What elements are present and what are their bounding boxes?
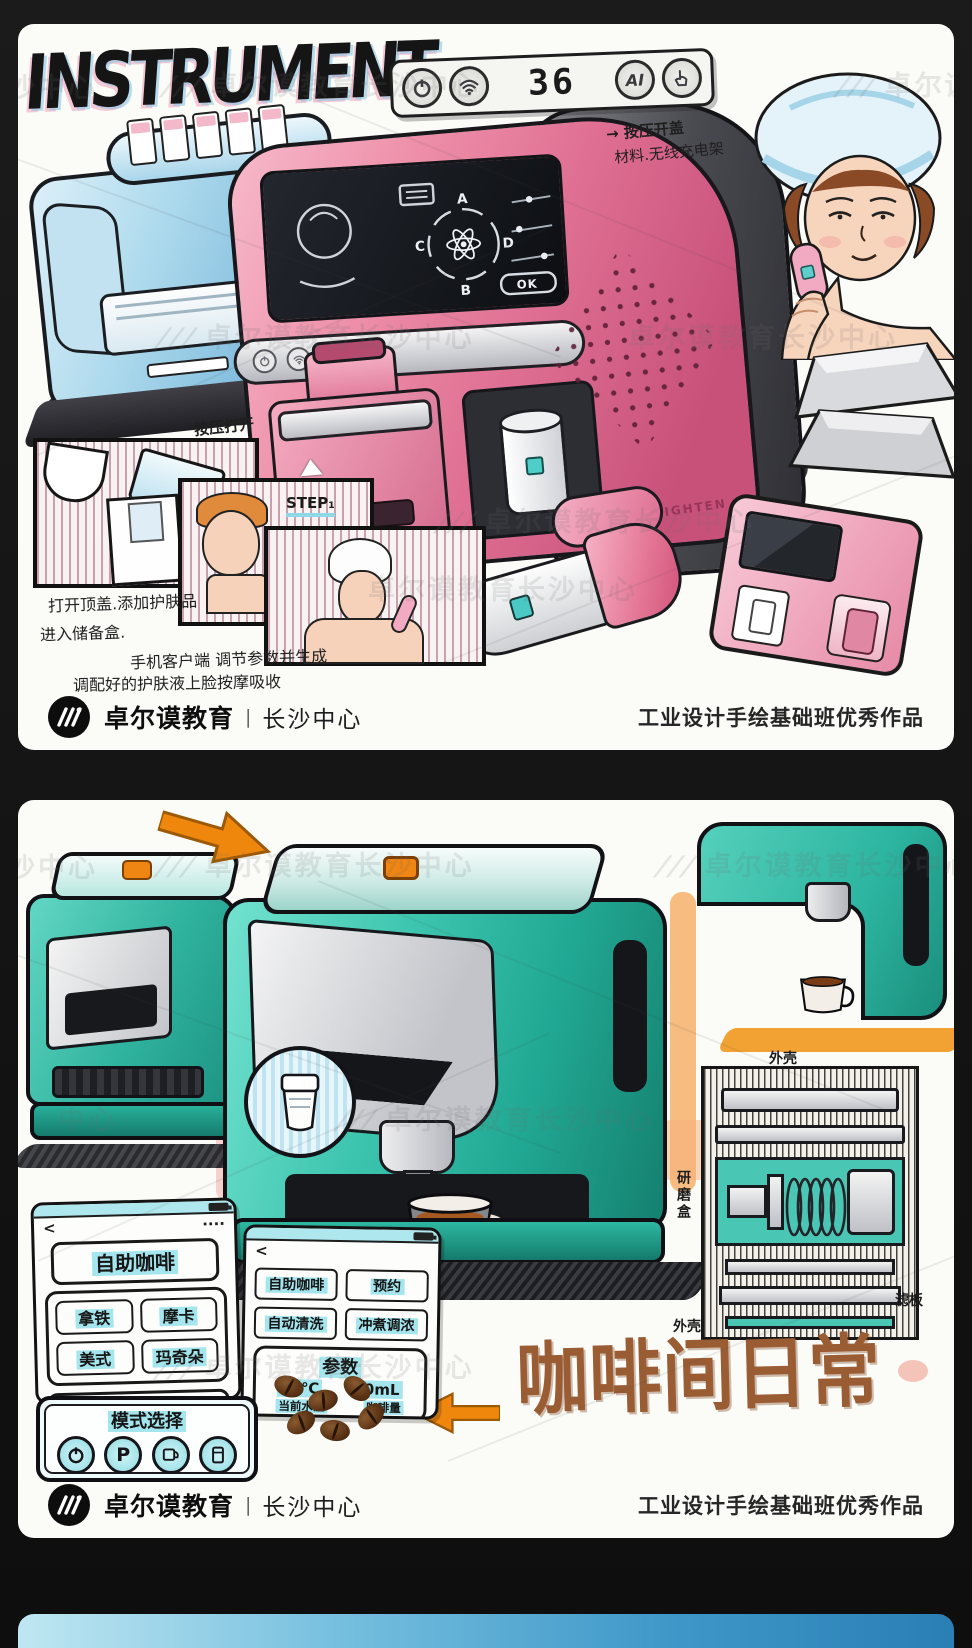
silver-band [232, 319, 586, 386]
phone-nav: < ···· [34, 1213, 234, 1238]
grinder-exploded-diagram: 外壳 研磨盒 外壳 滤板 [673, 1052, 919, 1340]
hatch-backdrop [701, 1066, 919, 1340]
device-screen: A D B C OK [259, 153, 570, 323]
settings-row-2: 自动清洗 冲煮调浓 [254, 1306, 429, 1341]
annotation-line4: 调配好的护肤液上脸按摩吸收 [73, 668, 281, 696]
battery-icon [208, 1202, 228, 1211]
self-service-coffee-title: 自助咖啡 [50, 1238, 219, 1285]
cartridge [126, 118, 158, 167]
left-view-front-panel [46, 925, 172, 1050]
option-latte: 拿铁 [55, 1299, 133, 1335]
coffee-machine-left-view [26, 852, 250, 1164]
power-icon [67, 1446, 85, 1464]
battery-icon [413, 1232, 433, 1240]
band-power-icon [252, 349, 277, 374]
screw-spring [784, 1172, 854, 1242]
ingot-sketches [790, 346, 954, 506]
brand-name: 卓尔谟教育 [104, 1487, 234, 1523]
step-1: STEP₁ [286, 494, 335, 517]
card-footer: 卓尔谟教育 | 长沙中心 工业设计手绘基础班优秀作品 [18, 1484, 954, 1526]
capsule-detail-icon [272, 1069, 328, 1135]
card-footer: 卓尔谟教育 | 长沙中心 工业设计手绘基础班优秀作品 [18, 696, 954, 738]
annotation-line1: 打开顶盖.添加护肤品 [48, 587, 198, 616]
woman-portrait [730, 58, 954, 360]
figure-shoulders [206, 574, 270, 614]
drawer-silver-bar [277, 399, 433, 442]
logo-chip [383, 856, 419, 880]
next-card-edge [18, 1614, 954, 1648]
poster: INSTRUMENT [0, 0, 972, 1648]
caption-text: 工业设计手绘基础班优秀作品 [638, 702, 924, 732]
eject-triangle-icon [299, 458, 322, 476]
screen-point-b: B [460, 283, 471, 300]
paint-splash [898, 1360, 928, 1382]
footer-separator: | [245, 1494, 251, 1516]
option-mocha: 摩卡 [139, 1297, 217, 1333]
screen-point-d: D [502, 235, 514, 252]
brew-strength-button: 冲煮调浓 [345, 1308, 429, 1341]
screen-ok-button: OK [516, 277, 538, 292]
ai-button: AI [614, 59, 656, 101]
left-view-base [30, 1102, 232, 1140]
touch-icon [661, 57, 703, 99]
top-lid [259, 844, 609, 914]
label-grinder-box: 研磨盒 [673, 1170, 693, 1221]
top-control-bar: 36 AI [389, 48, 715, 118]
plate-layer [715, 1125, 906, 1144]
base-plate-layer [719, 1286, 901, 1305]
tray-screen [738, 510, 844, 583]
coffee-machine-side-view [653, 822, 953, 1062]
side-view-body [697, 822, 947, 1020]
coffee-options-group: 拿铁 摩卡 美式 玛奇朵 [45, 1287, 229, 1387]
figure-face [202, 510, 260, 576]
side-view-spout [805, 882, 851, 922]
label-filter: 滤板 [895, 1290, 923, 1310]
ingot [788, 404, 954, 482]
branch-name: 长沙中心 [262, 1488, 362, 1522]
mode-small-cup-button [152, 1436, 190, 1474]
arrow-icon: → [605, 124, 619, 143]
mode-power-button [57, 1436, 95, 1474]
reserve-button: 预约 [345, 1269, 429, 1302]
motor-block [727, 1185, 768, 1218]
reservoir-opening [128, 501, 165, 543]
cup-chip [525, 456, 545, 476]
mode-inner: 模式选择 P [44, 1404, 250, 1474]
screen-point-c: C [415, 239, 426, 256]
side-window-slot [613, 940, 647, 1092]
filter-layer [725, 1259, 895, 1275]
burr-block [847, 1169, 895, 1235]
mode-p-button: P [104, 1436, 142, 1474]
side-view-shadow [717, 1028, 954, 1052]
grinder-box-layer [715, 1157, 906, 1245]
zhuoermo-logo [48, 1484, 90, 1526]
small-cup-icon [162, 1447, 180, 1463]
footer-separator: | [245, 706, 251, 728]
settings-row-1: 自助咖啡 预约 [254, 1267, 429, 1302]
power-icon [401, 67, 443, 109]
mug-icon [211, 1446, 225, 1464]
caption-text: 工业设计手绘基础班优秀作品 [638, 1490, 924, 1520]
mode-buttons: P [46, 1436, 248, 1474]
zhuoermo-logo [48, 696, 90, 738]
brand-name: 卓尔谟教育 [104, 699, 234, 735]
screen-point-a: A [456, 191, 468, 208]
detail-magnifier [244, 1046, 356, 1158]
screen-graphics: A D B C OK [262, 157, 566, 321]
auto-clean-button: 自动清洗 [254, 1306, 338, 1339]
mode-title: 模式选择 [46, 1407, 248, 1433]
back-icon: < [255, 1241, 268, 1259]
shell-layer [721, 1088, 899, 1112]
temperature-display: 36 [495, 61, 608, 105]
left-view-logo-chip [122, 860, 152, 880]
tray-module [730, 584, 790, 647]
left-view-drip-tray [52, 1066, 204, 1098]
blue-device-slot [146, 356, 229, 378]
coffee-bean [319, 1418, 352, 1443]
artwork-card-coffee: 外壳 研磨盒 外壳 滤板 < ···· 自助咖啡 拿铁 摩卡 美式 玛奇朵 [18, 800, 954, 1538]
mode-mug-button [199, 1436, 237, 1474]
mode-selection-panel: 模式选择 P [36, 1396, 258, 1482]
artwork-card-instrument: INSTRUMENT [18, 24, 954, 750]
label-shell-top: 外壳 [769, 1048, 797, 1068]
side-view-cup [791, 966, 855, 1018]
side-view-slot [903, 844, 929, 966]
flange [767, 1174, 784, 1230]
bottle-sketch [39, 441, 109, 506]
back-icon: < [43, 1219, 56, 1237]
brew-head [379, 1120, 455, 1174]
annotation-line2: 进入储备盒. [40, 619, 126, 646]
left-view-body [26, 894, 238, 1106]
phone-mockup-settings: < 自助咖啡 预约 自动清洗 冲煮调浓 参数 40℃ 0mL 当前水温 咖啡量 [240, 1224, 441, 1419]
wifi-icon [448, 65, 490, 107]
self-service-button: 自助咖啡 [254, 1267, 338, 1300]
calligraphy-title: 咖啡间日常 [515, 1306, 883, 1431]
tray-cup-module [825, 593, 892, 663]
accessory-tray [707, 492, 925, 679]
option-macchiato: 玛奇朵 [141, 1338, 219, 1374]
phone-nav: < [246, 1240, 438, 1263]
option-americano: 美式 [56, 1340, 134, 1376]
menu-dots-icon: ···· [202, 1215, 225, 1234]
phone-mockup-order: < ···· 自助咖啡 拿铁 摩卡 美式 玛奇朵 ¥15 确认 [30, 1197, 241, 1404]
sketch-title: INSTRUMENT [22, 24, 436, 127]
woman-face-small [338, 570, 386, 624]
left-view-window [65, 984, 157, 1036]
branch-name: 长沙中心 [262, 700, 362, 734]
